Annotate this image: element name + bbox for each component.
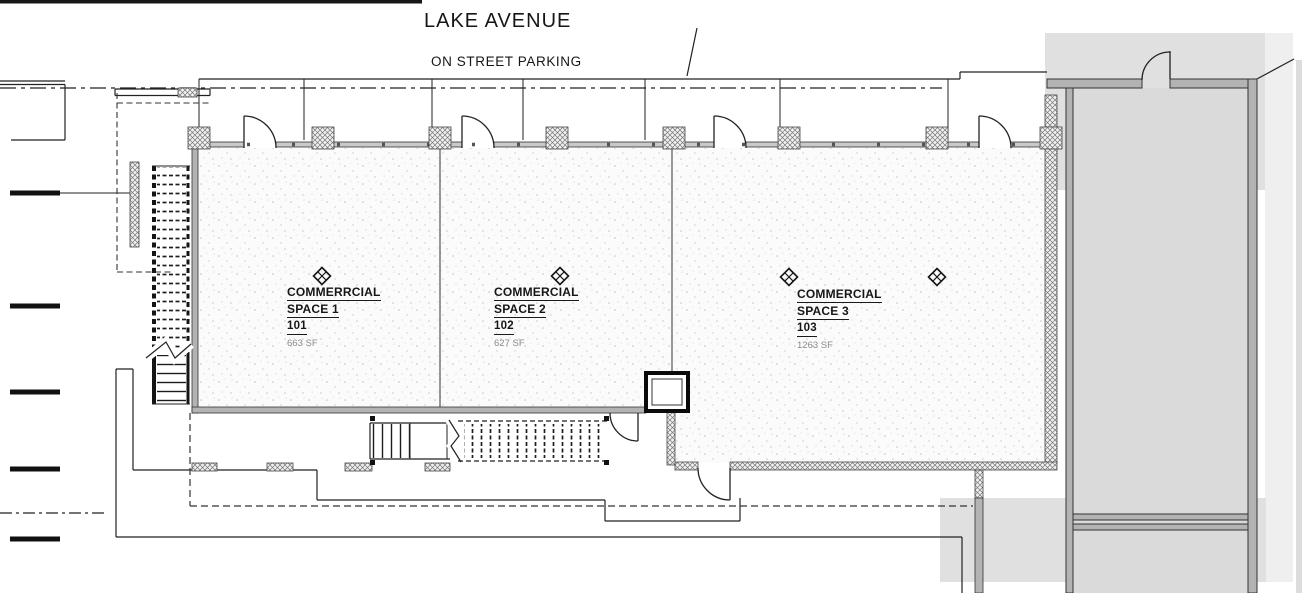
south-wall-space-3a <box>675 462 698 470</box>
space-2-unit-number: 102 <box>494 319 514 335</box>
space-1-title-line1: COMMERRCIAL <box>287 285 381 301</box>
space-2-area: 627 SF <box>494 337 525 351</box>
leader-line <box>687 28 697 76</box>
floor-plan-canvas: LAKE AVENUE ON STREET PARKING COMMERRCIA… <box>0 0 1302 593</box>
stair-south <box>370 416 609 465</box>
west-wall <box>192 140 198 413</box>
space-1-unit-number: 101 <box>287 319 307 335</box>
entry-door-2 <box>462 116 494 148</box>
east-wall <box>1045 95 1057 463</box>
on-street-parking-label: ON STREET PARKING <box>431 54 582 69</box>
party-wall-lower <box>975 498 983 593</box>
stair-west <box>146 166 191 404</box>
space-2-label: COMMERCIAL SPACE 2 102 627 SF <box>494 285 579 351</box>
south-wall-space-3b <box>730 462 1057 470</box>
south-wall-spaces-1-2 <box>192 407 646 413</box>
space-3-area: 1263 SF <box>797 339 833 353</box>
page-edge-line <box>0 0 422 4</box>
space-1-area: 663 SF <box>287 337 318 351</box>
space-2-title-line2: SPACE 2 <box>494 302 546 318</box>
space-2-title-line1: COMMERCIAL <box>494 285 579 301</box>
floor-plan-drawing <box>0 0 1302 593</box>
parking-stall-marks <box>10 191 60 542</box>
entry-door-4 <box>979 116 1011 148</box>
rear-door-space-3 <box>698 468 730 500</box>
entry-door-3 <box>714 116 746 148</box>
space-1-label: COMMERRCIAL SPACE 1 101 663 SF <box>287 285 381 351</box>
rear-door-space-2 <box>610 413 638 441</box>
elevator-shaft <box>646 373 688 411</box>
space-3-label: COMMERCIAL SPACE 3 103 1263 SF <box>797 287 882 353</box>
street-name-label: LAKE AVENUE <box>424 10 571 33</box>
space-3-title-line2: SPACE 3 <box>797 304 849 320</box>
space-1-title-line2: SPACE 1 <box>287 302 339 318</box>
space-3-title-line1: COMMERCIAL <box>797 287 882 303</box>
space-3-unit-number: 103 <box>797 321 817 337</box>
